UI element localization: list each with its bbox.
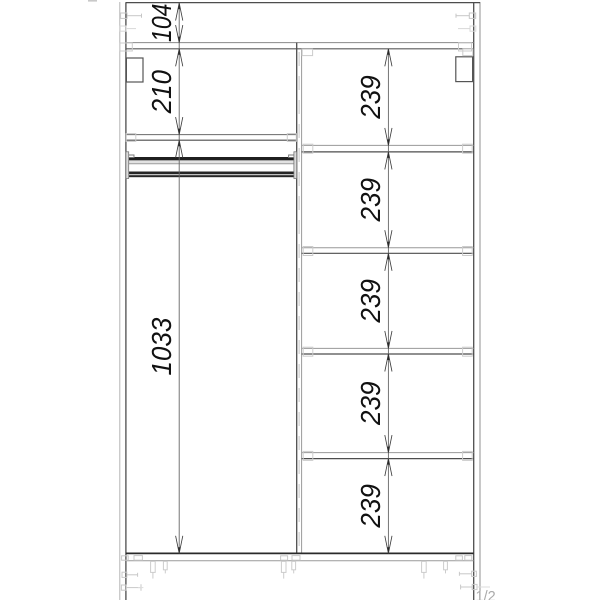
svg-text:239: 239 [355,484,386,528]
svg-text:1033: 1033 [146,318,177,376]
svg-text:239: 239 [355,382,386,426]
svg-text:239: 239 [355,75,386,119]
svg-text:210: 210 [146,70,177,114]
svg-text:239: 239 [355,178,386,222]
svg-text:104: 104 [147,4,178,42]
svg-text:239: 239 [355,279,386,323]
svg-text:1/2: 1/2 [476,589,496,600]
